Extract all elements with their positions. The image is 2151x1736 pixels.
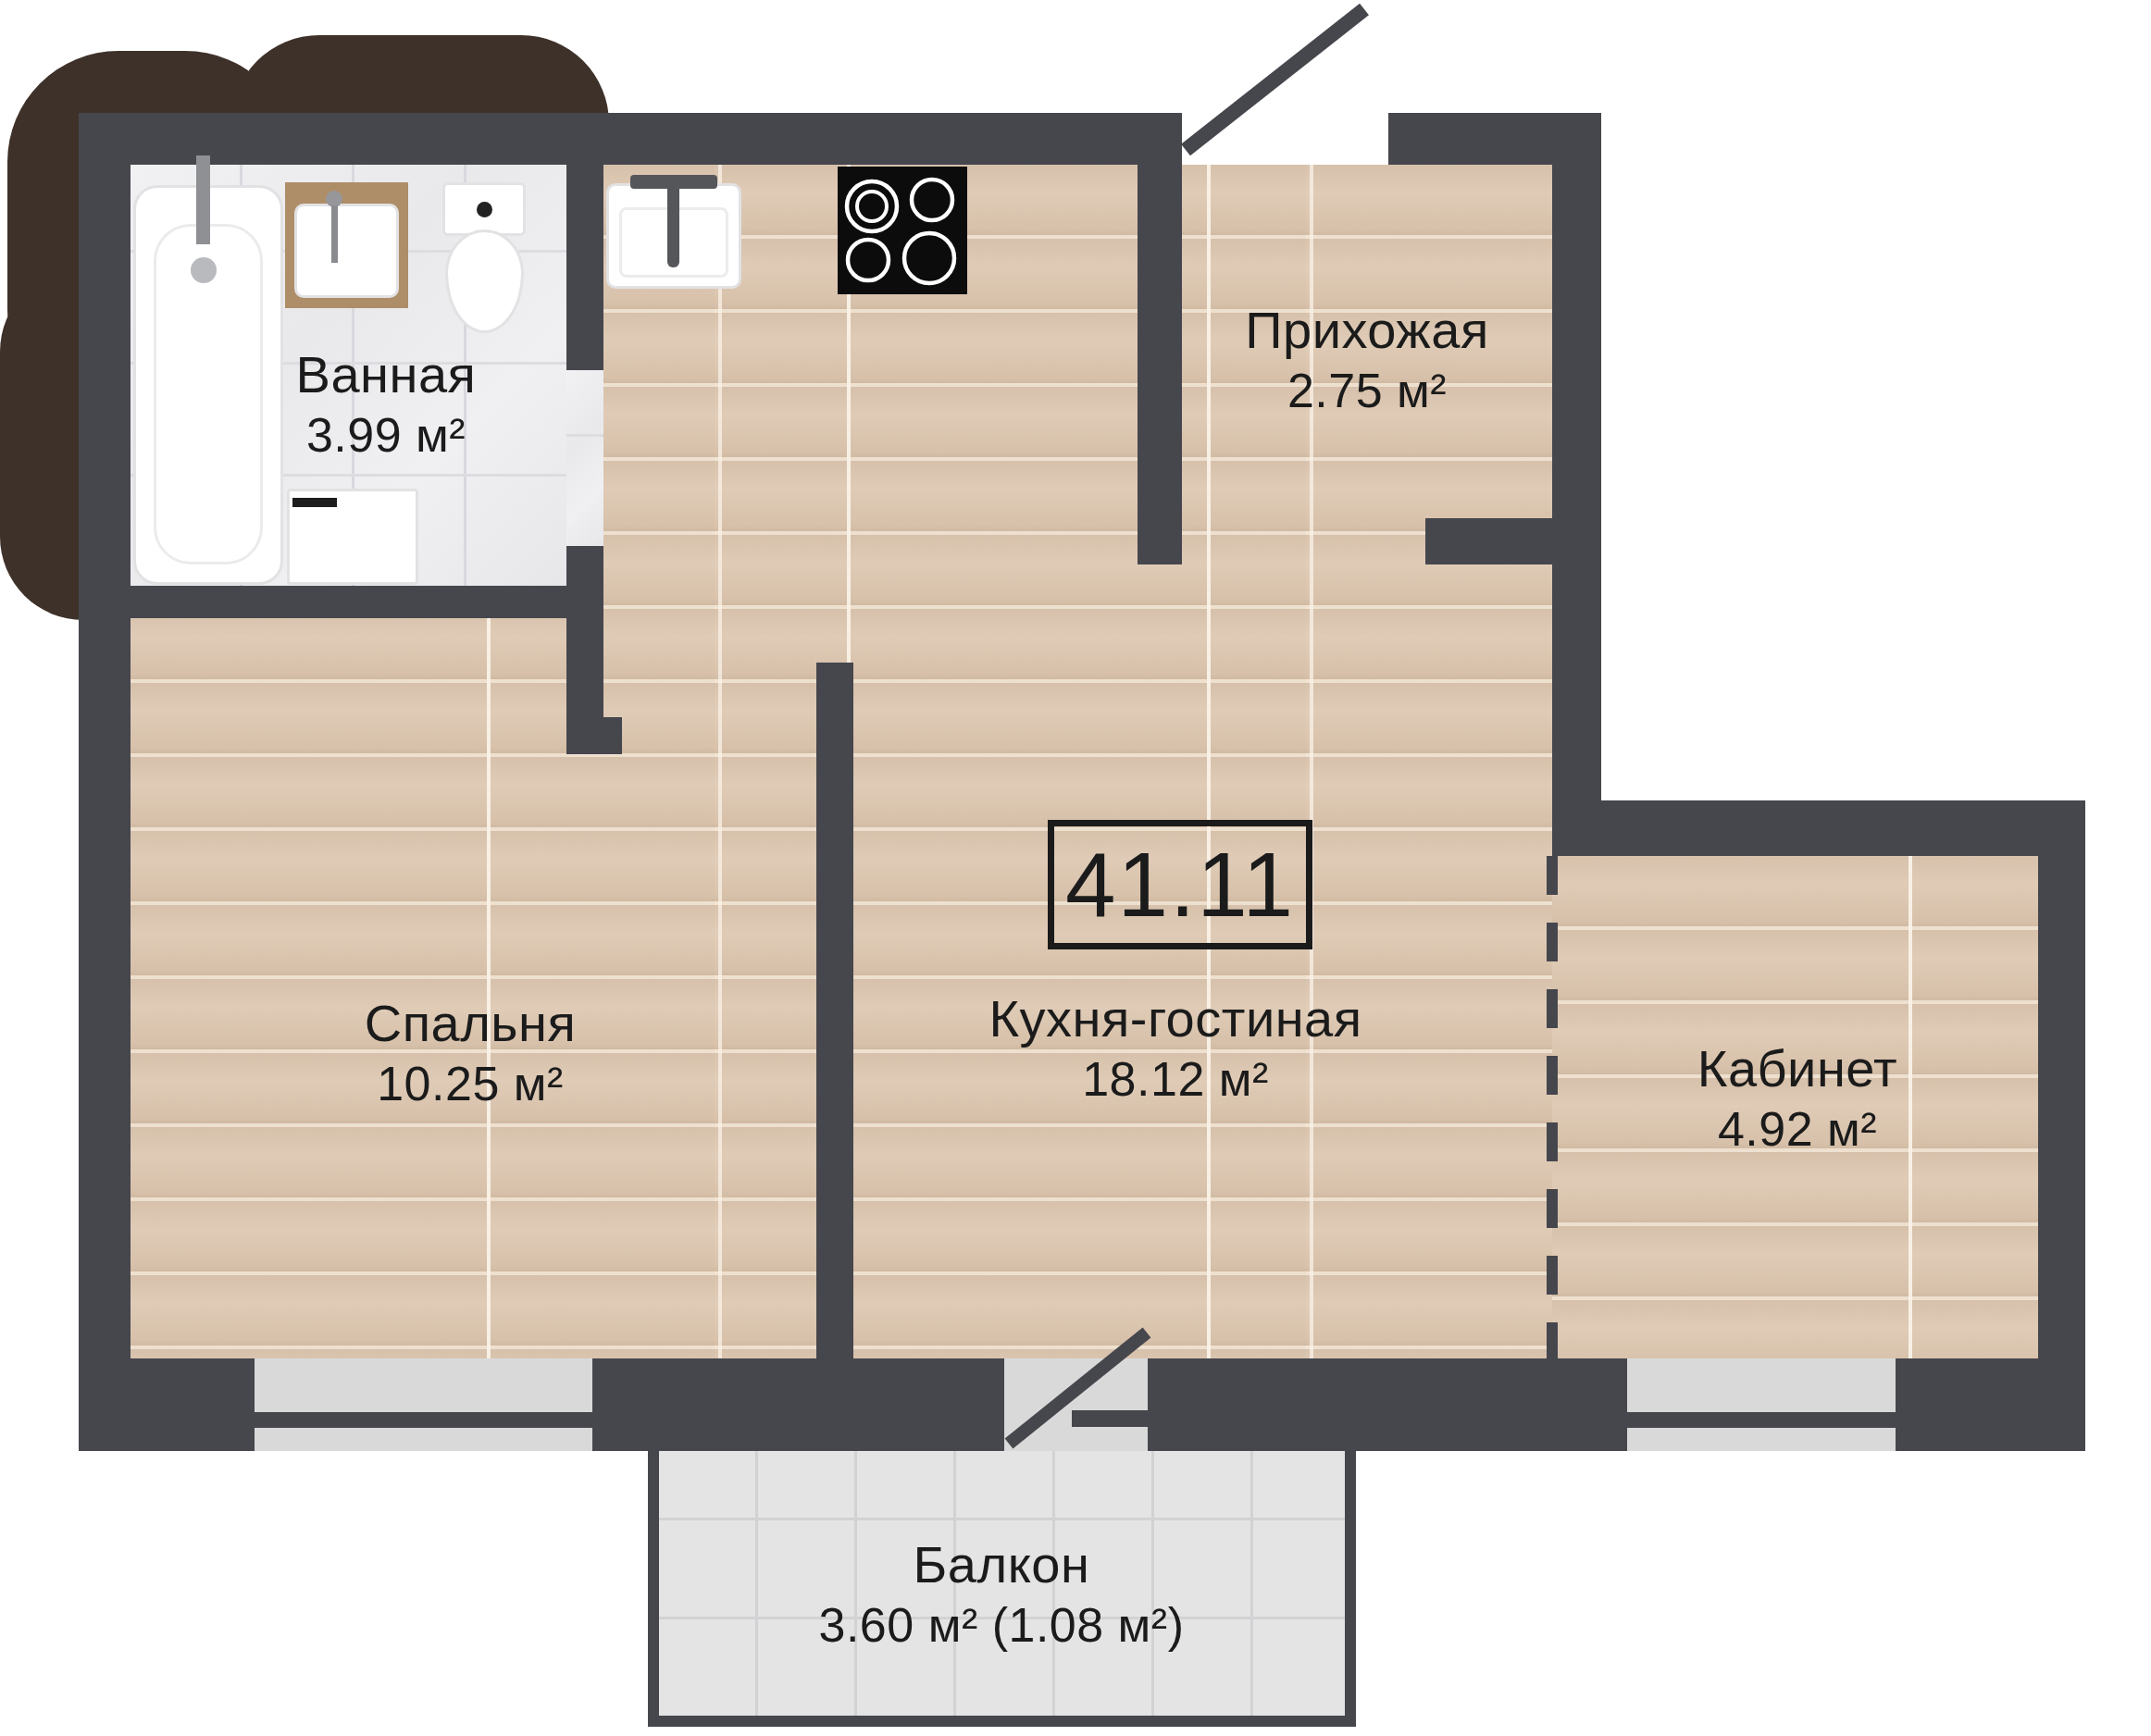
room-name: Спальня (365, 995, 577, 1052)
wall-bathroom-right-upper (566, 165, 603, 370)
bathroom-door-threshold (566, 370, 603, 546)
balcony-door-side-frame (1072, 1410, 1148, 1427)
wall-bathroom-bottom (79, 586, 603, 618)
bathtub-drain-icon (191, 257, 217, 283)
room-label-kitchen-living: Кухня-гостиная 18.12 м² (988, 990, 1361, 1106)
office-window-frame (1627, 1412, 1896, 1428)
room-area: 18.12 м² (1082, 1052, 1269, 1105)
room-label-hallway: Прихожая 2.75 м² (1245, 302, 1489, 417)
room-area: 3.99 м² (306, 408, 466, 461)
balcony-door-opening (1004, 1358, 1148, 1451)
room-name: Прихожая (1245, 302, 1489, 359)
burner-icon (912, 180, 952, 220)
office-window-outer (1627, 1428, 1896, 1451)
room-label-bedroom: Спальня 10.25 м² (365, 995, 577, 1110)
room-name: Балкон (914, 1536, 1090, 1593)
burner-icon (848, 240, 889, 280)
bedroom-window (255, 1358, 592, 1412)
wall-top-left (79, 113, 1182, 165)
burner-icon (857, 192, 887, 221)
burner-icon (904, 233, 954, 283)
room-area: 2.75 м² (1287, 364, 1447, 416)
room-name: Кухня-гостиная (988, 990, 1361, 1048)
washing-machine-panel-icon (292, 498, 337, 507)
wall-hallway-bottom-stub (1425, 518, 1601, 564)
entrance-door-icon (1186, 9, 1364, 150)
dashed-partition-line (1547, 856, 1558, 1358)
room-area: 4.92 м² (1718, 1102, 1877, 1155)
total-area-value: 41.11 (1065, 833, 1295, 937)
total-area-box: 41.11 (1048, 820, 1312, 949)
wall-nub-bedroom-door (566, 717, 622, 754)
floor-plan: 41.11 Ванная 3.99 м² Прихожая 2.75 м² Ку… (0, 0, 2151, 1736)
room-label-office: Кабинет 4.92 м² (1697, 1040, 1897, 1156)
wall-right-hallway (1552, 113, 1601, 856)
room-area: 3.60 м² (1.08 м²) (818, 1598, 1184, 1651)
wall-stub-below-bathroom (566, 618, 603, 717)
bathtub-faucet-icon (196, 155, 210, 244)
room-label-bathroom: Ванная 3.99 м² (296, 346, 477, 462)
stove-icon (838, 167, 967, 294)
wall-hallway-left (1138, 113, 1182, 564)
wall-office-right (2038, 800, 2085, 1451)
bathroom-sink-faucet-stem-icon (331, 205, 338, 263)
office-window (1627, 1358, 1896, 1412)
room-area: 10.25 м² (377, 1057, 564, 1110)
room-name: Кабинет (1697, 1040, 1897, 1097)
toilet-button-icon (477, 202, 492, 217)
burner-icon (847, 181, 897, 231)
wall-left (79, 113, 131, 1451)
kitchen-faucet-stem-icon (667, 175, 679, 267)
wall-office-top (1552, 800, 2085, 856)
bathroom-sink-icon (294, 204, 399, 298)
room-label-balcony: Балкон 3.60 м² (1.08 м²) (818, 1536, 1184, 1652)
bedroom-window-frame (255, 1412, 592, 1428)
bedroom-window-outer (255, 1428, 592, 1451)
room-name: Ванная (296, 346, 477, 403)
wall-bedroom-kitchen (816, 663, 853, 1358)
